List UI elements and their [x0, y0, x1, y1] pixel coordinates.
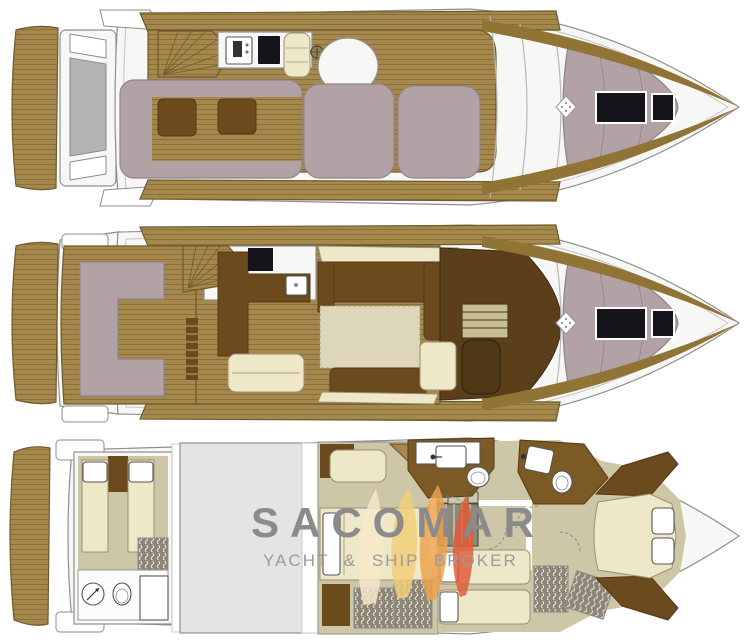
pillow [440, 552, 458, 582]
helm-seat [462, 340, 500, 394]
deck-hatch [652, 94, 674, 121]
swim-platform [10, 447, 50, 626]
crew-vanity [140, 576, 168, 620]
flybridge-table [218, 99, 256, 134]
flybridge-stairs [158, 31, 224, 77]
guest-wardrobe [534, 566, 568, 612]
swim-platform [12, 242, 58, 403]
master-cabinet [322, 584, 350, 626]
grill-burner [233, 41, 242, 57]
pillow [129, 462, 153, 482]
yacht-deck-plan-figure: SACOMAR YACHT & SHIP BROKER [0, 0, 751, 640]
flybridge-sunpad [304, 84, 394, 178]
washbasin-icon [431, 446, 467, 468]
bulkhead [302, 443, 318, 633]
salon-sofa-backrest [318, 392, 438, 404]
deck-hatch [652, 310, 674, 337]
main-deck [12, 225, 739, 422]
flybridge-sunpad [398, 86, 480, 178]
guest-wardrobe [394, 580, 432, 628]
crew-nightstand [108, 456, 128, 492]
toilet-icon [552, 471, 572, 493]
dinette-rug [320, 306, 420, 368]
guest-bed [438, 590, 530, 624]
pillow [652, 538, 674, 564]
grill-knob [245, 50, 248, 53]
sink-drain [294, 283, 298, 287]
toilet-icon [113, 583, 131, 605]
wall [430, 498, 436, 558]
swim-platform [12, 26, 58, 189]
master-sofa [330, 450, 386, 482]
sun-lounger [284, 33, 310, 77]
companionway-stairs [462, 304, 508, 338]
master-bed [320, 508, 440, 580]
dinette-sofa-arm [318, 262, 334, 312]
crew-wardrobe [138, 538, 168, 570]
cooktop [248, 248, 273, 271]
bulkhead [172, 444, 180, 632]
engine-room [180, 443, 308, 633]
flybridge-deck [12, 9, 739, 206]
crew-bed [82, 460, 108, 552]
pillow [83, 462, 107, 482]
guest-bed [438, 550, 530, 584]
deck-plans-drawing [0, 0, 751, 640]
vip-bed [594, 494, 676, 578]
grill-knob [245, 43, 248, 46]
lower-deck [10, 438, 739, 634]
side-ladder [186, 318, 198, 380]
deck-hatch [596, 92, 646, 123]
tender-garage [70, 58, 106, 156]
fridge-icon [258, 36, 280, 64]
boarding-step [62, 406, 108, 422]
pillow [440, 592, 458, 622]
pillow [323, 513, 340, 575]
shower-icon [82, 583, 104, 605]
toilet-icon [467, 467, 489, 487]
wall [478, 500, 532, 506]
deck-hatch [596, 308, 646, 339]
pillow [652, 508, 674, 534]
flybridge-table [158, 99, 196, 136]
helm-console [420, 342, 456, 390]
